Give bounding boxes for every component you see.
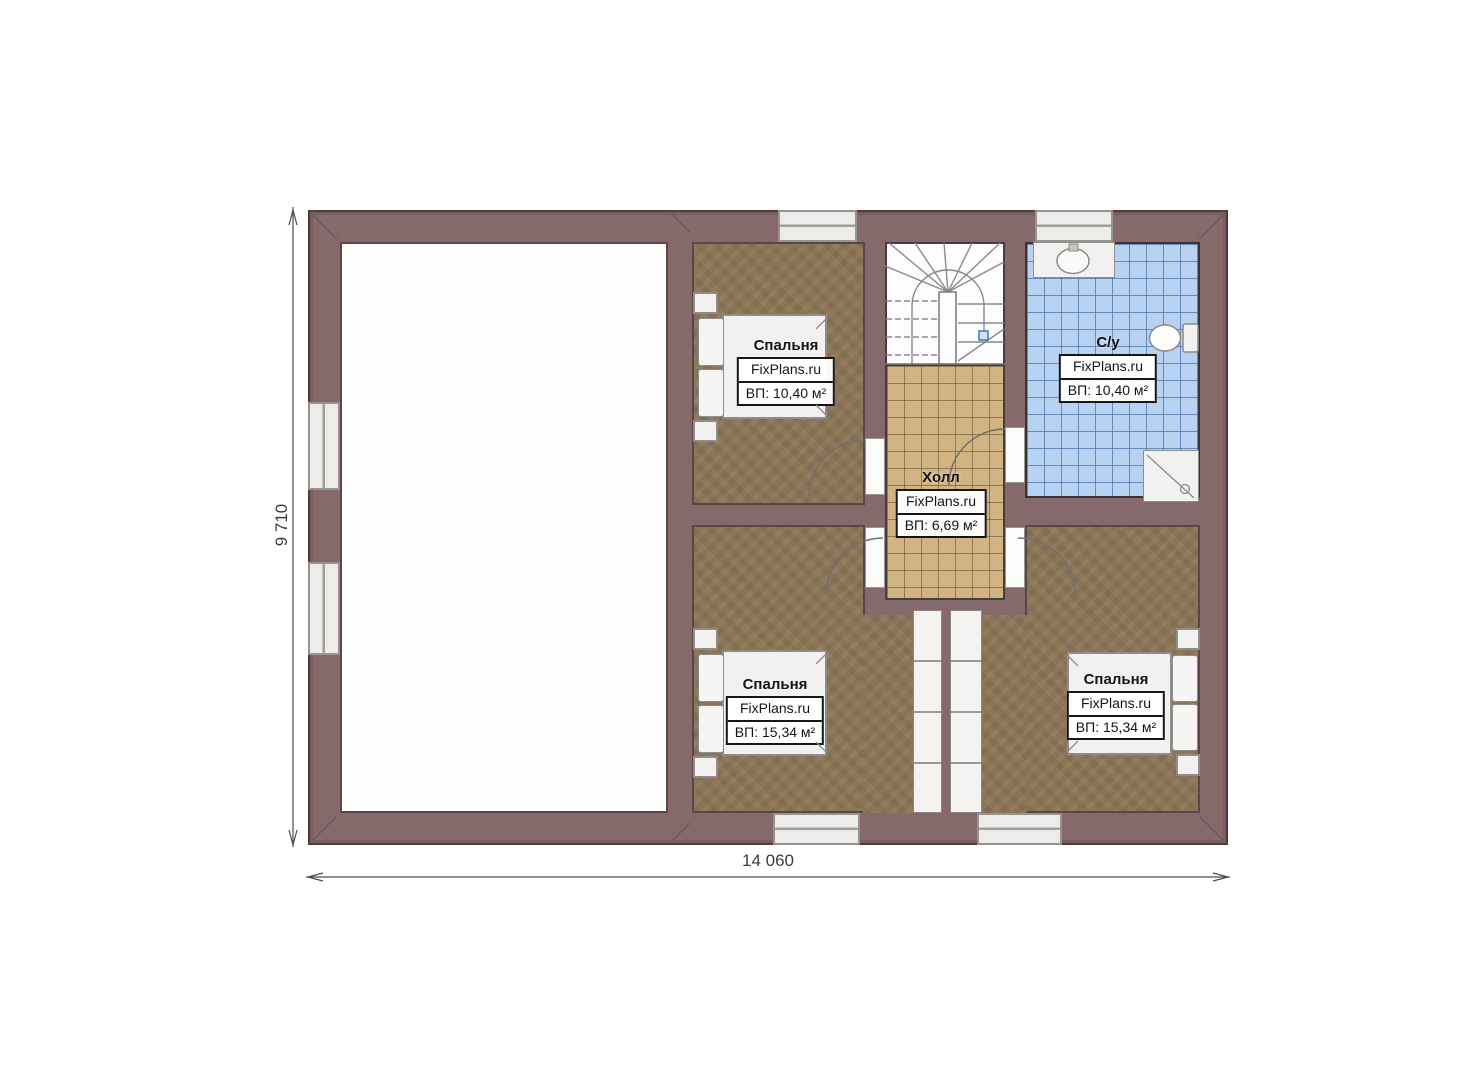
room-info-box: FixPlans.ru ВП: 6,69 м²: [896, 489, 987, 538]
window-bottom-right: [977, 813, 1062, 845]
window-top-bedroom: [778, 210, 857, 242]
dimension-arrows-bottom: [308, 873, 1228, 881]
room-label-bedroom-bottom-left: Спальня FixPlans.ru ВП: 15,34 м²: [726, 676, 824, 745]
brand-label: FixPlans.ru: [1069, 693, 1163, 717]
brand-label: FixPlans.ru: [728, 698, 822, 722]
window-top-bathroom: [1035, 210, 1113, 242]
nightstand: [693, 628, 718, 650]
area-label: ВП: 10,40 м²: [739, 383, 833, 405]
wardrobe-left: [913, 610, 942, 813]
room-name: Спальня: [743, 676, 808, 693]
brand-label: FixPlans.ru: [1061, 356, 1155, 380]
nightstand: [1176, 628, 1200, 650]
area-label: ВП: 15,34 м²: [1069, 717, 1163, 739]
area-label: ВП: 15,34 м²: [728, 722, 822, 744]
door-bedroom-bottom-right: [1005, 527, 1025, 588]
pillow: [698, 369, 724, 417]
pillow: [698, 654, 724, 702]
nightstand: [693, 420, 718, 442]
dimension-width-label: 14 060: [698, 851, 838, 871]
room-info-box: FixPlans.ru ВП: 15,34 м²: [726, 696, 824, 745]
room-name: Холл: [922, 469, 960, 486]
nightstand: [693, 292, 718, 314]
shower-tray: [1143, 450, 1199, 502]
window-left-lower: [308, 562, 340, 655]
room-label-bedroom-top: Спальня FixPlans.ru ВП: 10,40 м²: [737, 337, 835, 406]
room-name: Спальня: [754, 337, 819, 354]
window-bottom-left: [773, 813, 860, 845]
room-label-bedroom-bottom-right: Спальня FixPlans.ru ВП: 15,34 м²: [1067, 671, 1165, 740]
nightstand: [1176, 754, 1200, 776]
room-label-hall: Холл FixPlans.ru ВП: 6,69 м²: [896, 469, 987, 538]
dimension-height-label: 9 710: [272, 495, 292, 555]
pillow: [1172, 704, 1198, 751]
window-left-upper: [308, 402, 340, 490]
area-label: ВП: 6,69 м²: [898, 515, 985, 537]
brand-label: FixPlans.ru: [898, 491, 985, 515]
room-left-empty: [340, 242, 668, 813]
room-name: Спальня: [1084, 671, 1149, 688]
wardrobe-right: [950, 610, 982, 813]
room-info-box: FixPlans.ru ВП: 10,40 м²: [1059, 354, 1157, 403]
sink-counter: [1033, 242, 1115, 278]
pillow: [1172, 655, 1198, 702]
room-label-bathroom: С/у FixPlans.ru ВП: 10,40 м²: [1059, 334, 1157, 403]
door-bedroom-top: [865, 438, 885, 495]
room-info-box: FixPlans.ru ВП: 15,34 м²: [1067, 691, 1165, 740]
stairwell: [885, 242, 1005, 366]
pillow: [698, 318, 724, 366]
nightstand: [693, 756, 718, 778]
pillow: [698, 705, 724, 753]
room-info-box: FixPlans.ru ВП: 10,40 м²: [737, 357, 835, 406]
area-label: ВП: 10,40 м²: [1061, 380, 1155, 402]
room-name: С/у: [1096, 334, 1119, 351]
floor-plan: Спальня FixPlans.ru ВП: 10,40 м² С/у Fix…: [0, 0, 1473, 1080]
brand-label: FixPlans.ru: [739, 359, 833, 383]
door-bathroom: [1005, 427, 1025, 483]
door-bedroom-bottom-left: [865, 527, 885, 588]
